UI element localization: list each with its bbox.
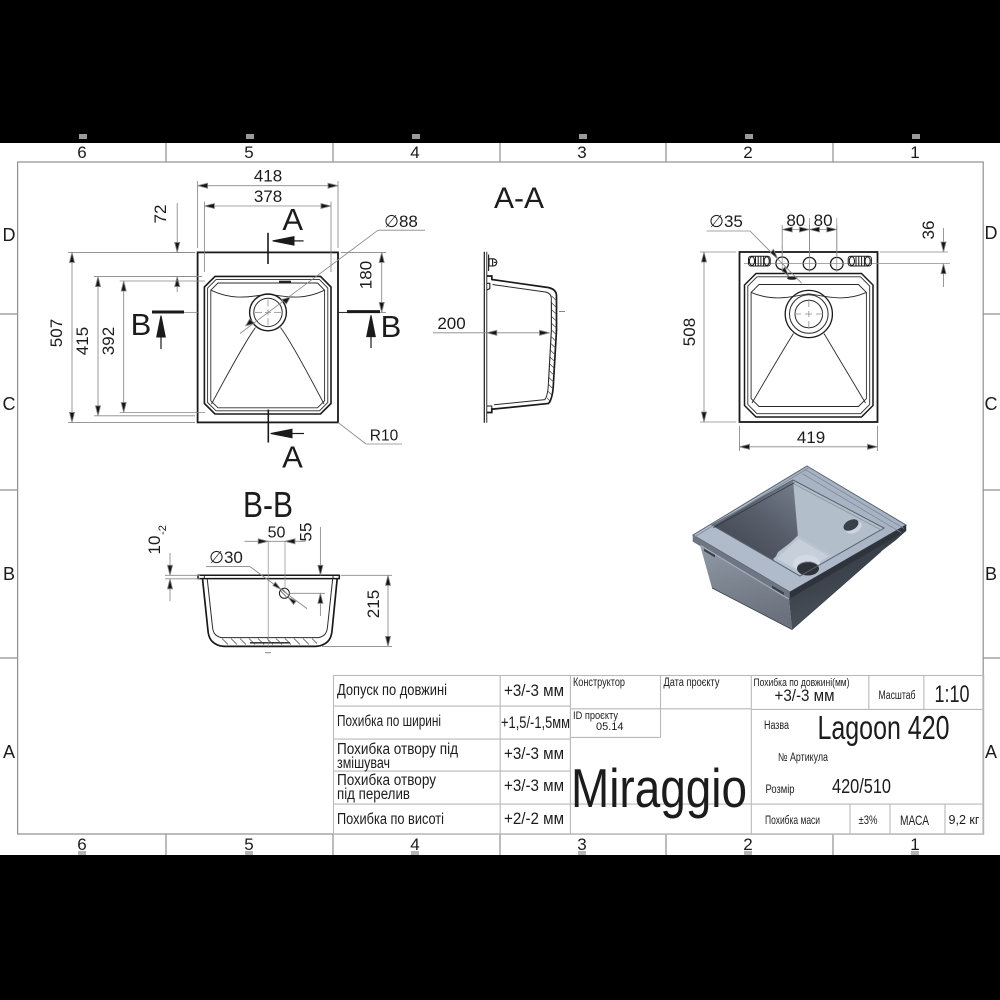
svg-text:№ Артикула: № Артикула (778, 752, 828, 764)
svg-text:A-A: A-A (494, 182, 544, 215)
svg-text:+3/-3 мм: +3/-3 мм (775, 687, 835, 705)
svg-text:508: 508 (680, 318, 699, 346)
svg-text:5: 5 (244, 143, 253, 162)
svg-text:під перелив: під перелив (337, 786, 410, 803)
svg-text:Дата проєкту: Дата проєкту (664, 677, 720, 689)
svg-text:420/510: 420/510 (832, 776, 891, 798)
svg-text:B: B (131, 307, 152, 342)
svg-text:36: 36 (919, 221, 938, 240)
svg-text:∅88: ∅88 (384, 212, 418, 231)
svg-text:B: B (381, 309, 402, 344)
svg-text:Miraggio: Miraggio (571, 757, 747, 819)
svg-text:200: 200 (437, 314, 465, 333)
svg-text:Похибка по ширині: Похибка по ширині (337, 713, 441, 730)
svg-text:1: 1 (910, 143, 919, 162)
svg-text:419: 419 (797, 428, 825, 447)
svg-text:6: 6 (77, 143, 86, 162)
svg-text:A: A (282, 440, 303, 475)
svg-text:10: 10 (145, 536, 164, 555)
svg-text:1:10: 1:10 (935, 681, 970, 708)
svg-text:D: D (3, 225, 16, 245)
svg-text:378: 378 (254, 187, 282, 206)
svg-text:Масштаб: Масштаб (879, 690, 916, 702)
svg-text:Похибка маси: Похибка маси (765, 813, 820, 827)
svg-text:3: 3 (577, 143, 586, 162)
svg-text:+1,5/-1,5мм: +1,5/-1,5мм (501, 714, 570, 732)
svg-text:50: 50 (268, 525, 286, 542)
svg-text:C: C (3, 394, 16, 414)
svg-text:4: 4 (410, 143, 419, 162)
svg-text:+3/-3 мм: +3/-3 мм (504, 682, 564, 700)
svg-text:2: 2 (743, 143, 752, 162)
svg-text:+2/-2 мм: +2/-2 мм (504, 810, 564, 828)
svg-text:-2: -2 (157, 525, 169, 535)
svg-text:Конструктор: Конструктор (573, 677, 625, 689)
svg-text:МАСА: МАСА (900, 812, 929, 828)
svg-text:9,2 кг: 9,2 кг (949, 812, 980, 827)
svg-text:+3/-3 мм: +3/-3 мм (504, 777, 564, 795)
svg-text:05.14: 05.14 (596, 721, 624, 733)
svg-text:80: 80 (814, 211, 833, 230)
svg-text:A: A (282, 202, 303, 237)
svg-text:B: B (3, 564, 15, 584)
svg-text:215: 215 (364, 590, 383, 618)
svg-text:Lagoon 420: Lagoon 420 (818, 709, 950, 746)
svg-text:418: 418 (254, 167, 282, 186)
svg-text:55: 55 (297, 523, 316, 542)
svg-text:B-B: B-B (243, 484, 293, 525)
svg-text:72: 72 (151, 205, 170, 224)
svg-text:180: 180 (357, 261, 376, 289)
svg-text:392: 392 (99, 327, 118, 355)
svg-text:B: B (985, 564, 997, 584)
svg-text:Допуск по довжині: Допуск по довжині (337, 682, 447, 699)
svg-text:Розмір: Розмір (766, 784, 795, 796)
svg-text:∅30: ∅30 (209, 548, 243, 567)
svg-text:Назва: Назва (764, 720, 789, 732)
svg-text:C: C (985, 394, 998, 414)
svg-text:A: A (3, 742, 15, 762)
svg-text:415: 415 (73, 327, 92, 355)
svg-text:A: A (985, 742, 997, 762)
svg-text:507: 507 (47, 319, 66, 347)
svg-text:Похибка по висоті: Похибка по висоті (337, 811, 444, 828)
svg-text:D: D (985, 223, 998, 243)
svg-text:80: 80 (786, 211, 805, 230)
svg-text:+3/-3 мм: +3/-3 мм (504, 745, 564, 763)
svg-text:змішувач: змішувач (337, 755, 390, 772)
svg-text:∅35: ∅35 (709, 212, 743, 231)
svg-text:R10: R10 (370, 428, 399, 445)
svg-text:±3%: ±3% (859, 813, 878, 827)
